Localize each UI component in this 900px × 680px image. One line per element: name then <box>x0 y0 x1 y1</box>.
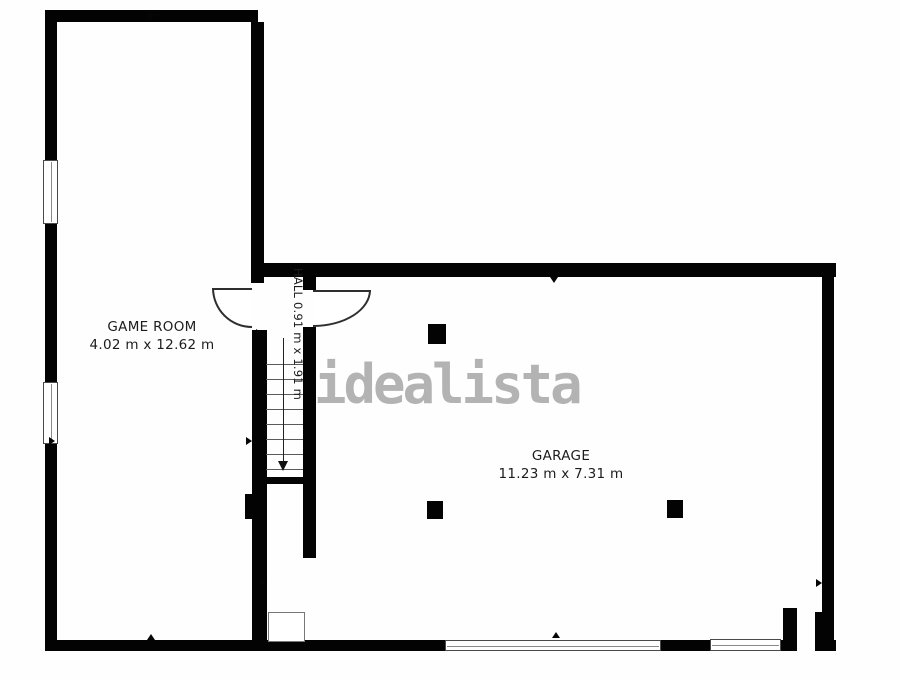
left-wall-window-2 <box>43 382 58 444</box>
hall-label: HALL 0.91 m x 1.91 m <box>272 268 306 368</box>
garage-dimensions: 11.23 m x 7.31 m <box>460 465 662 483</box>
window-mullion <box>51 162 52 222</box>
bottom-right-corner <box>815 612 834 651</box>
gameroom-name: GAME ROOM <box>52 318 252 336</box>
hall-dimensions: 0.91 m x 1.91 m <box>291 302 305 400</box>
tick-mark <box>147 14 155 20</box>
window-mullion <box>51 384 52 442</box>
door-hall-to-garage <box>313 290 371 327</box>
garage-label: GARAGE 11.23 m x 7.31 m <box>460 447 662 483</box>
garage-column-1 <box>428 324 446 344</box>
garage-top-wall <box>251 263 836 277</box>
center-wall-pier <box>245 494 256 519</box>
stair-down-arrow-icon <box>278 461 288 471</box>
garage-column-2 <box>427 501 443 519</box>
tick-mark <box>49 437 55 445</box>
tick-mark <box>552 632 560 638</box>
gameroom-label: GAME ROOM 4.02 m x 12.62 m <box>52 318 252 354</box>
exterior-door-leaf <box>268 612 305 642</box>
idealista-watermark: idealista <box>314 358 580 412</box>
left-wall-window-1 <box>43 160 58 224</box>
window-mullion <box>447 646 659 647</box>
bottom-wall-seg3 <box>781 640 797 651</box>
tick-mark <box>816 579 822 587</box>
bottom-wall-seg2 <box>661 640 710 651</box>
tick-mark <box>261 578 267 586</box>
bottom-right-stub <box>783 608 797 640</box>
tick-mark <box>256 329 262 337</box>
gameroom-left-wall-upper <box>45 10 57 162</box>
floor-plan: GAME ROOM 4.02 m x 12.62 m HALL 0.91 m x… <box>0 0 900 680</box>
hall-name: HALL <box>291 268 305 298</box>
gameroom-bottom-wall <box>45 640 267 651</box>
garage-name: GARAGE <box>460 447 662 465</box>
garage-column-3 <box>667 500 683 518</box>
window-mullion <box>712 645 779 646</box>
gameroom-left-wall-mid <box>45 223 57 383</box>
tick-mark <box>550 277 558 283</box>
stair-bottom-wall <box>252 477 310 484</box>
garage-right-wall <box>822 263 834 651</box>
tick-mark <box>246 437 252 445</box>
bottom-wall-window-long <box>445 640 661 651</box>
center-wall-lower <box>252 330 267 651</box>
center-wall-upper <box>251 22 264 283</box>
gameroom-left-wall-lower <box>45 443 57 651</box>
gameroom-dimensions: 4.02 m x 12.62 m <box>52 336 252 354</box>
bottom-wall-window-2 <box>710 639 781 651</box>
tick-mark <box>147 634 155 640</box>
